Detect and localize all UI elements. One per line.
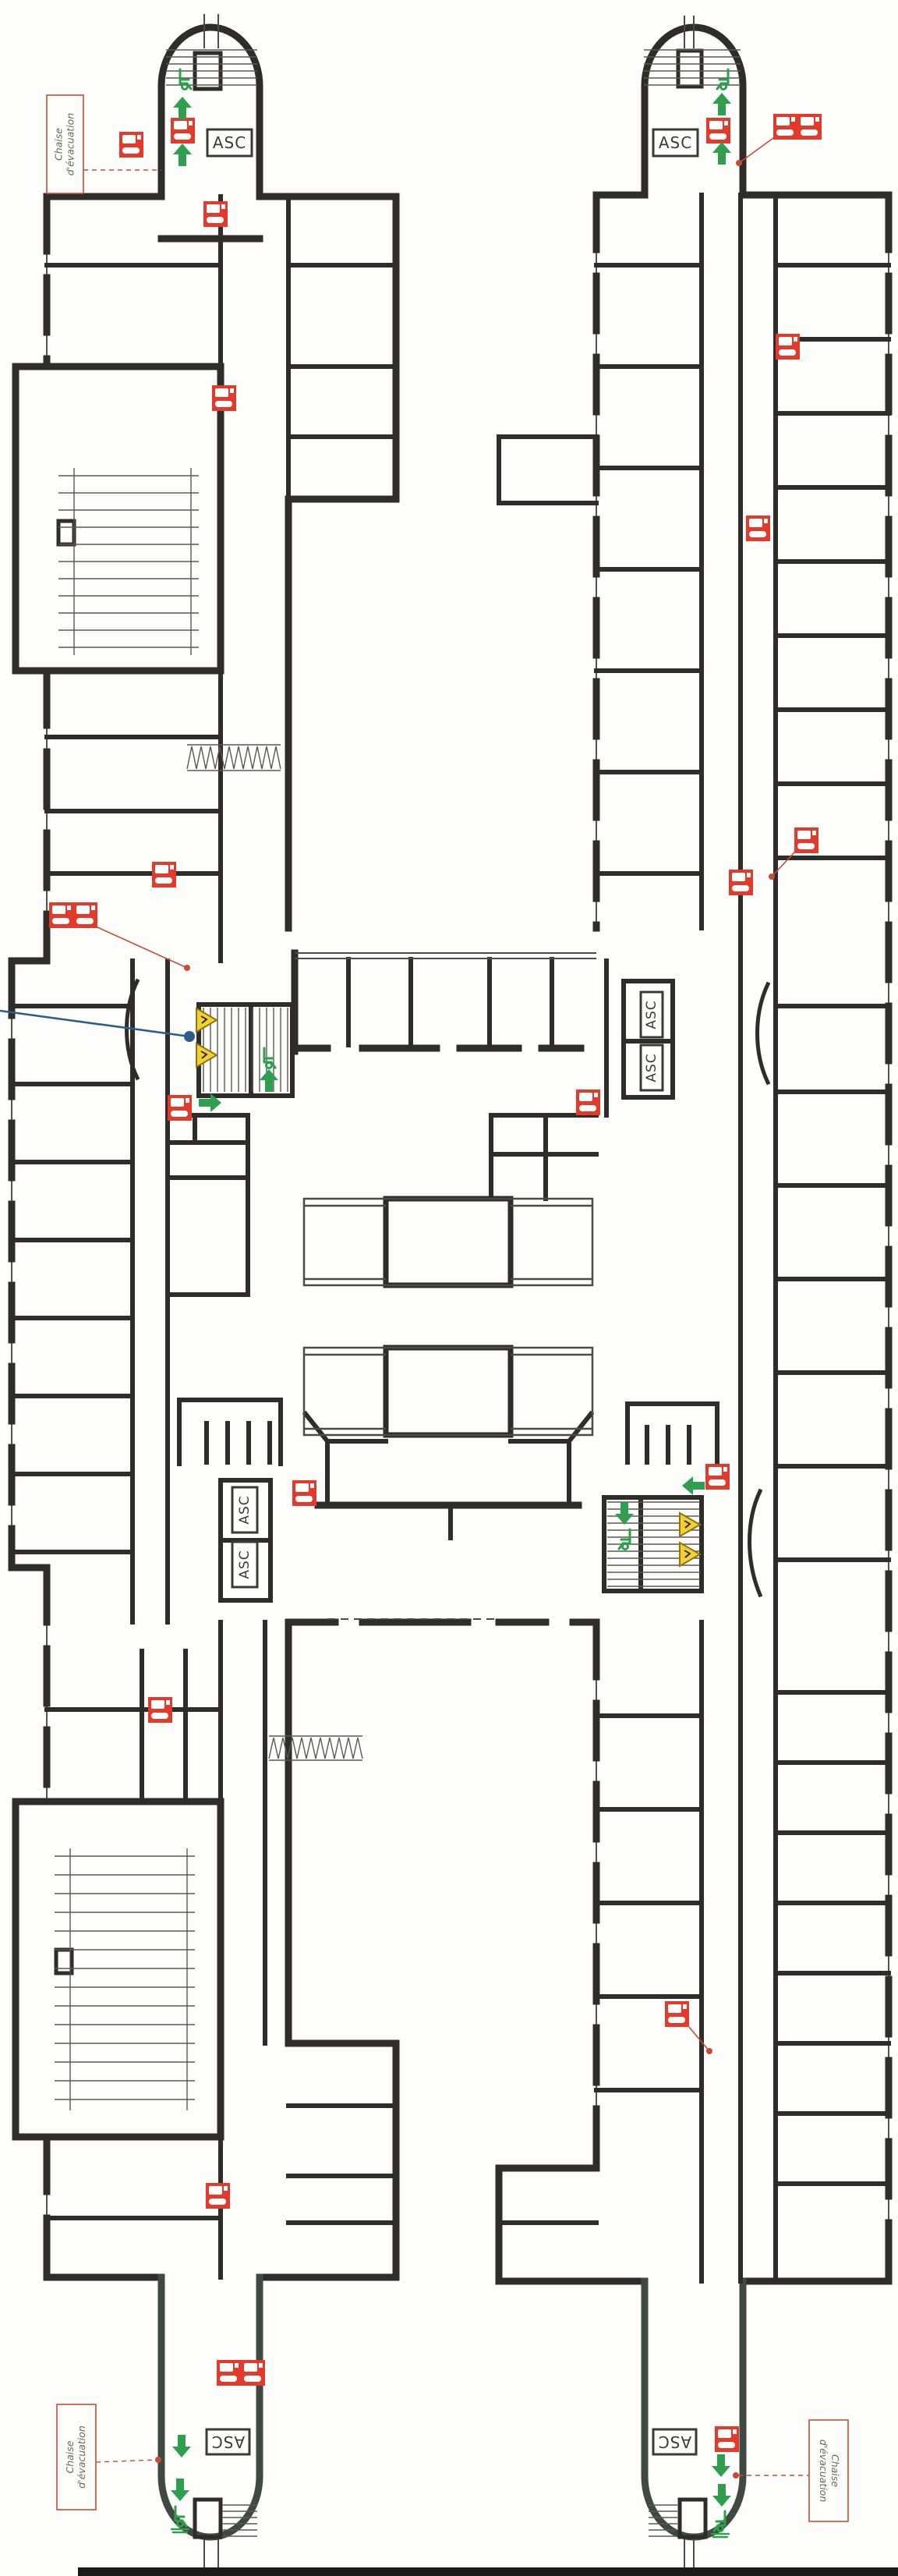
evac-arrow-left-icon [682,1476,705,1495]
fire-extinguisher-icon [217,2360,241,2386]
elevator-asc-label: ASC [653,2429,696,2454]
evac-chair-label-box: Chaised'évacuation [47,95,83,193]
red-leader-dot [706,2048,712,2054]
red-leader-line [97,927,187,968]
fire-extinguisher-icon [148,1697,172,1723]
evac-arrow-down-icon [615,1502,634,1525]
red-leader-dot [733,2472,739,2479]
bottom-towers-outline [161,2277,743,2537]
fire-extinguisher-icon [715,2426,739,2452]
evac-arrow-up-icon [260,1069,278,1092]
evac-arrow-down-icon [171,2479,189,2501]
fire-extinguisher-icon [152,862,176,888]
svg-text:Chaised'évacuation: Chaised'évacuation [53,113,76,176]
fire-extinguisher-icon [776,334,800,360]
evacuation-floor-plan-drawing: ASCASCASCASCASCASCASCASCChaised'évacuati… [0,0,898,2576]
elevator-asc-label: ASC [653,129,698,156]
elevator-asc-label: ASC [641,1045,663,1090]
scan-edge-bar [78,2567,898,2576]
elevator-asc-label: ASC [232,1487,257,1532]
evac-arrow-up-icon [712,142,731,165]
evac-arrow-up-icon [173,97,192,119]
evac-arrow-down-icon [712,2454,730,2477]
floor-plan-page: ASCASCASCASCASCASCASCASCChaised'évacuati… [0,0,898,2576]
svg-text:ASC: ASC [237,1495,253,1524]
red-dashed-leader-line [96,2460,158,2462]
evac-arrow-down-icon [712,2484,731,2507]
evac-chair-label-box: Chaised'évacuation [809,2420,848,2521]
fire-extinguisher-icon [212,385,236,411]
fire-extinguisher-icon [49,902,73,928]
fire-extinguisher-icon [746,516,770,541]
fire-extinguisher-icon [292,1480,316,1506]
fire-extinguisher-icon [794,827,818,853]
walls-layer [12,14,898,2576]
red-leader-dot [736,160,742,166]
warning-triangle-icon [196,1044,217,1067]
red-leader-dot [769,873,775,880]
top-towers-outline [161,27,743,197]
fire-extinguisher-icon [705,1464,730,1490]
evacuation-chair-icon [619,1529,630,1550]
court-glazing [304,1199,592,1435]
fire-extinguisher-icon [665,2001,689,2027]
fire-extinguisher-icon [773,114,797,140]
warning-triangle-icon [680,1543,700,1566]
central-court-rooms [386,1199,511,1435]
blue-leader-line [0,1011,189,1036]
svg-text:ASC: ASC [644,1053,659,1082]
safety-symbols-layer: ASCASCASCASCASCASCASCASCChaised'évacuati… [0,69,848,2537]
fire-extinguisher-icon [171,118,195,144]
fire-extinguisher-icon [706,118,730,144]
blue-leader-dot [184,1031,195,1042]
evac-arrow-up-icon [712,93,731,115]
svg-text:ASC: ASC [211,2432,245,2451]
svg-text:ASC: ASC [658,2432,691,2451]
evac-arrow-down-icon [172,2435,191,2457]
elevator-asc-label: ASC [641,992,663,1037]
evac-chair-label-box: Chaised'évacuation [57,2404,96,2510]
fire-extinguisher-icon [206,2183,230,2209]
evac-arrow-up-icon [173,144,192,166]
svg-text:Chaised'évacuation: Chaised'évacuation [64,2425,87,2489]
warning-triangle-icon [196,1008,217,1032]
evacuation-chair-icon [717,69,728,90]
fire-extinguisher-icon [203,201,228,227]
evacuation-chair-icon [180,69,191,90]
fire-extinguisher-icon [119,132,143,158]
svg-text:ASC: ASC [213,133,246,152]
fire-extinguisher-icon [576,1090,600,1115]
red-leader-dot [155,2457,161,2463]
fire-extinguisher-icon [241,2360,265,2386]
elevator-cabins [56,51,705,2537]
svg-text:ASC: ASC [659,133,692,152]
svg-text:ASC: ASC [644,1000,659,1029]
fire-extinguisher-icon [73,902,97,928]
svg-text:ASC: ASC [237,1550,253,1579]
elevator-asc-label: ASC [232,1542,257,1587]
svg-text:Chaised'évacuation: Chaised'évacuation [818,2440,841,2503]
fire-extinguisher-icon [168,1095,192,1121]
fire-extinguisher-icon [797,114,822,140]
fire-extinguisher-icon [729,870,753,895]
elevator-asc-label: ASC [207,129,252,156]
red-leader-dot [184,965,190,971]
elevator-asc-label: ASC [207,2429,249,2454]
